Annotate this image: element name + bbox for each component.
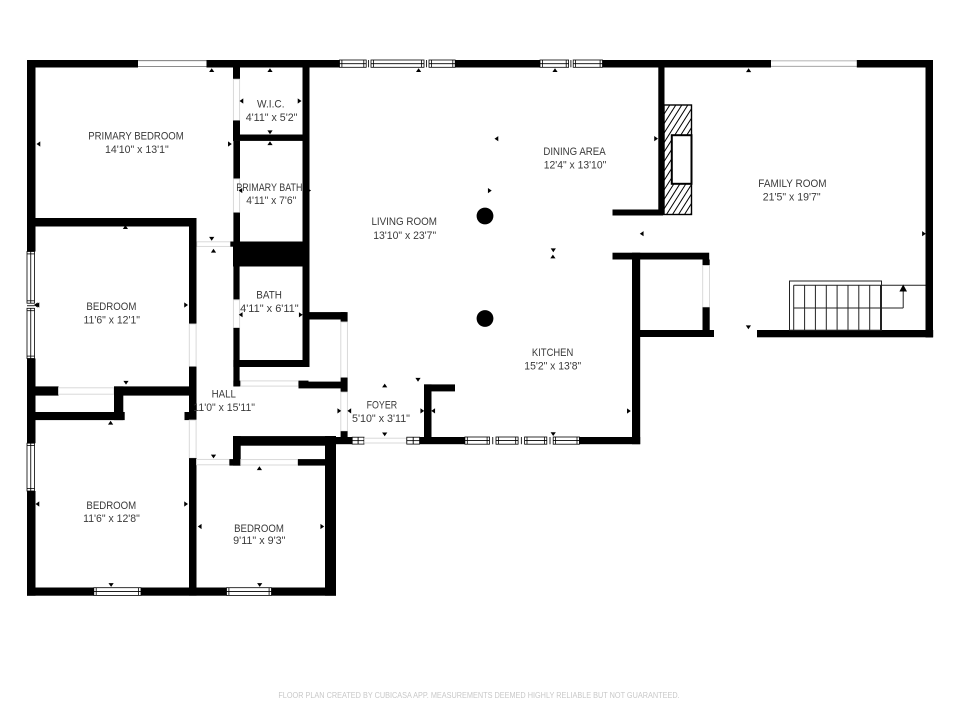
svg-text:KITCHEN: KITCHEN [532,347,573,359]
svg-text:13'10" x 23'7": 13'10" x 23'7" [373,230,436,242]
svg-text:FOYER: FOYER [367,400,398,412]
svg-text:LIVING ROOM: LIVING ROOM [371,216,437,228]
svg-text:14'10" x 13'1": 14'10" x 13'1" [105,144,169,156]
svg-text:BATH: BATH [256,290,282,302]
svg-text:4'11" x 7'6": 4'11" x 7'6" [246,195,296,207]
svg-text:BEDROOM: BEDROOM [234,523,284,535]
svg-text:BEDROOM: BEDROOM [86,500,136,512]
svg-text:11'6" x 12'8": 11'6" x 12'8" [83,513,140,525]
svg-text:BEDROOM: BEDROOM [86,301,136,313]
svg-text:4'11" x 6'11": 4'11" x 6'11" [240,303,299,315]
svg-text:W.I.C.: W.I.C. [257,99,285,111]
svg-text:PRIMARY BEDROOM: PRIMARY BEDROOM [88,131,184,143]
svg-text:12'4" x 13'10": 12'4" x 13'10" [544,159,607,171]
svg-text:FAMILY ROOM: FAMILY ROOM [758,178,826,190]
svg-text:HALL: HALL [212,389,236,401]
svg-text:15'2" x 13'8": 15'2" x 13'8" [524,361,581,373]
svg-text:FLOOR PLAN CREATED BY CUBICASA: FLOOR PLAN CREATED BY CUBICASA APP. MEAS… [278,690,679,700]
svg-text:9'11" x 9'3": 9'11" x 9'3" [233,535,286,547]
svg-text:21'5" x 19'7": 21'5" x 19'7" [763,192,821,204]
svg-text:11'6" x 12'1": 11'6" x 12'1" [84,315,141,327]
svg-text:5'10" x 3'11": 5'10" x 3'11" [352,413,410,425]
svg-text:PRIMARY BATH: PRIMARY BATH [236,182,302,194]
svg-text:DINING AREA: DINING AREA [543,146,606,158]
svg-text:4'11" x 5'2": 4'11" x 5'2" [246,112,298,124]
svg-text:11'0" x 15'11": 11'0" x 15'11" [193,402,255,414]
